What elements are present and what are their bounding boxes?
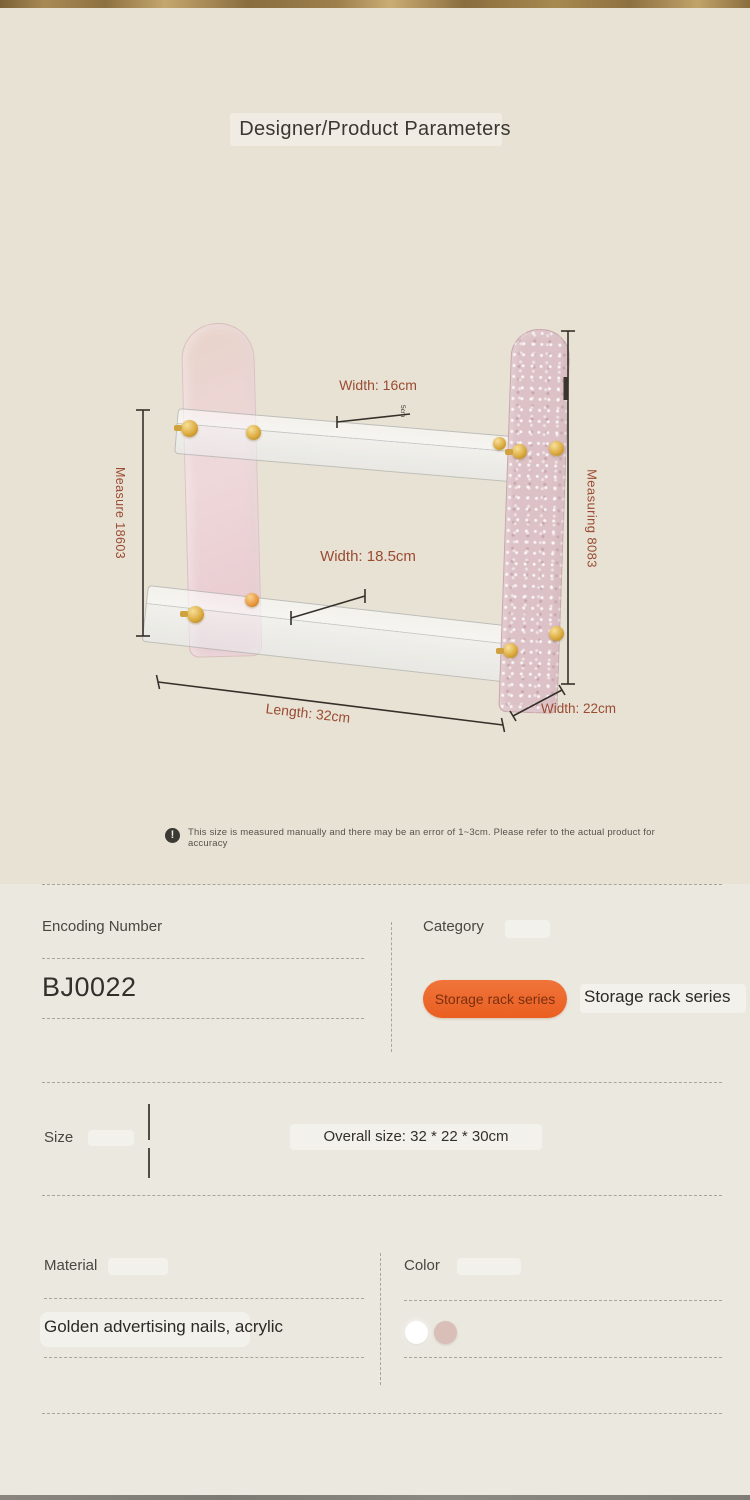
divider (42, 1195, 722, 1196)
column-divider (148, 1104, 150, 1140)
dashed-underline (42, 958, 364, 959)
dashed-underline (44, 1357, 364, 1358)
shimmer-patch (457, 1258, 521, 1275)
size-disclaimer: ! This size is measured manually and the… (165, 828, 710, 849)
hero-section: Designer/Product Parameters (0, 8, 750, 884)
dashed-underline (404, 1300, 722, 1301)
dim-label-right-height: Measuring 8083 (585, 454, 600, 584)
info-icon: ! (165, 828, 180, 843)
disclaimer-text: This size is measured manually and there… (188, 828, 693, 849)
divider (42, 1082, 722, 1083)
encoding-number-label: Encoding Number (42, 918, 162, 935)
bottom-bar (0, 1495, 750, 1500)
product-parameters-page: Designer/Product Parameters (0, 0, 750, 1500)
shimmer-patch (108, 1258, 168, 1275)
dim-label-left-height: Measure 18603 (113, 448, 127, 578)
gold-accent-bar (0, 0, 750, 8)
dim-label-top-width: Width: 16cm (318, 377, 438, 393)
shimmer-patch (88, 1130, 134, 1146)
material-label: Material (44, 1257, 97, 1274)
column-divider (148, 1148, 150, 1178)
dim-label-depth: Width: 22cm (541, 701, 631, 716)
color-label: Color (404, 1257, 440, 1274)
dashed-underline (44, 1298, 364, 1299)
encoding-number-value: BJ0022 (42, 972, 137, 1003)
dashed-underline (42, 1018, 364, 1019)
scale-mark (564, 377, 568, 400)
category-tag-chip[interactable]: Storage rack series (423, 980, 567, 1018)
color-swatch-white[interactable] (405, 1321, 428, 1344)
divider (42, 1413, 722, 1414)
product-image: Width: 16cm Width: 18.5cm Measure 18603 … (0, 8, 750, 892)
category-label: Category (423, 918, 484, 935)
column-divider (391, 922, 392, 1052)
dashed-underline (404, 1357, 722, 1358)
color-swatch-pink[interactable] (434, 1321, 457, 1344)
material-value: Golden advertising nails, acrylic (44, 1317, 283, 1337)
category-value: Storage rack series (584, 987, 730, 1007)
shimmer-patch (505, 920, 550, 938)
size-label: Size (44, 1129, 73, 1146)
dim-label-mid-width: Width: 18.5cm (298, 548, 438, 565)
dim-label-tiny: 5cm (399, 405, 406, 417)
size-value: Overall size: 32 * 22 * 30cm (296, 1128, 536, 1145)
column-divider (380, 1253, 381, 1385)
